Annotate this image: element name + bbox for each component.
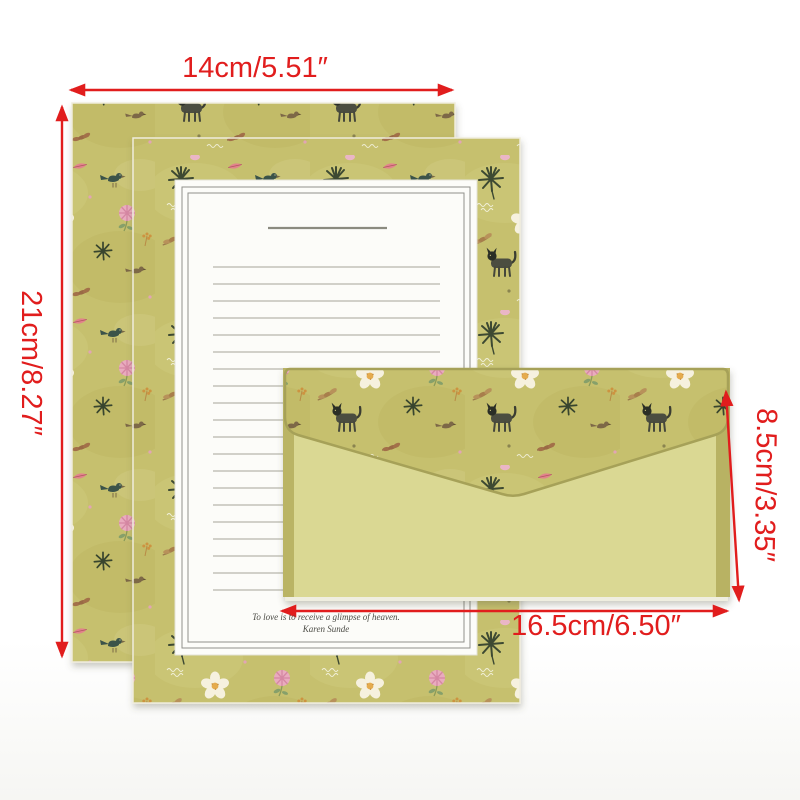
envelope bbox=[283, 368, 730, 601]
quote-text: To love is to receive a glimpse of heave… bbox=[175, 612, 477, 623]
paper-height-label: 21cm/8.27″ bbox=[15, 213, 47, 513]
paper-width-label: 14cm/5.51″ bbox=[105, 52, 405, 84]
quote-author: Karen Sunde bbox=[175, 623, 477, 635]
letter-quote: To love is to receive a glimpse of heave… bbox=[175, 612, 477, 635]
product-photo: 14cm/5.51″ 21cm/8.27″ 8.5cm/3.35″ 16.5cm… bbox=[0, 0, 800, 800]
stationery-scene bbox=[0, 0, 800, 800]
envelope-width-label: 16.5cm/6.50″ bbox=[446, 610, 746, 642]
envelope-height-label: 8.5cm/3.35″ bbox=[746, 335, 783, 636]
